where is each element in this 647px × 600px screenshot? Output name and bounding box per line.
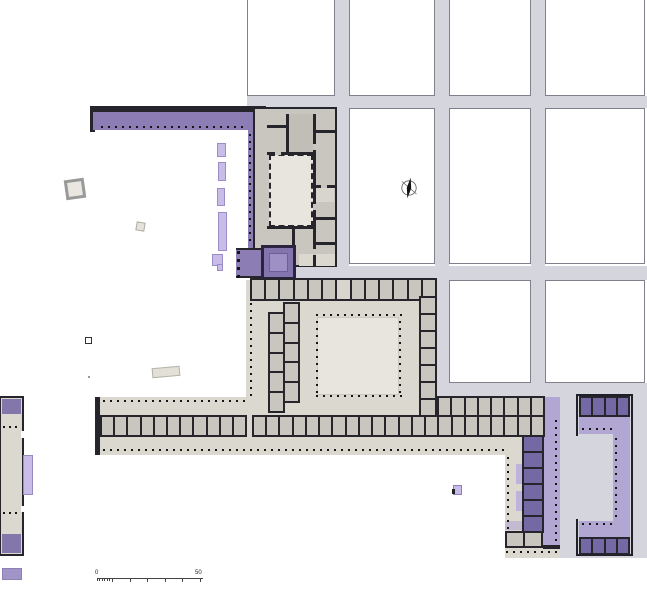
colonnade-dot: [507, 464, 509, 466]
colonnade-dot: [199, 126, 201, 128]
colonnade-dot: [222, 449, 224, 451]
colonnade-dot: [9, 426, 11, 428]
colonnade-dot: [555, 539, 557, 541]
room-cell: [591, 539, 603, 553]
room-cell: [307, 280, 321, 299]
room-cell: [490, 417, 503, 435]
room-cell: [126, 417, 139, 435]
colonnade-dot: [173, 400, 175, 402]
colonnade-dot: [131, 449, 133, 451]
southeast-corner-rooms: [437, 396, 545, 417]
room-cell: [264, 280, 278, 299]
colonnade-dot: [365, 395, 367, 397]
peristyle-courtyard: [317, 317, 399, 395]
colonnade-dot: [115, 126, 117, 128]
colonnade-dot: [237, 275, 240, 278]
colonnade-dot: [460, 449, 462, 451]
colonnade-dot: [596, 428, 598, 430]
room-cell: [524, 437, 542, 451]
colonnade-dot: [615, 438, 617, 440]
colonnade-dot: [446, 449, 448, 451]
colonnade-dot: [249, 134, 251, 136]
colonnade-dot: [376, 449, 378, 451]
room-cell: [398, 417, 411, 435]
scale-tick: [112, 578, 113, 582]
colonnade-dot: [555, 476, 557, 478]
room-cell: [318, 417, 331, 435]
colonnade-dot: [474, 449, 476, 451]
colonnade-dot: [229, 449, 231, 451]
colonnade-dot: [257, 449, 259, 451]
colonnade-dot: [180, 400, 182, 402]
colonnade-dot: [399, 384, 401, 386]
colonnade-dot: [227, 126, 229, 128]
colonnade-dot: [145, 449, 147, 451]
colonnade-dot: [249, 204, 251, 206]
colonnade-dot: [249, 211, 251, 213]
colonnade-dot: [411, 449, 413, 451]
colonnade-dot: [220, 126, 222, 128]
colonnade-dot: [393, 395, 395, 397]
colonnade-dot: [400, 395, 402, 397]
colonnade-dot: [358, 314, 360, 316]
colonnade-dot: [495, 449, 497, 451]
city-block: [449, 280, 531, 383]
east-wing-portico: [543, 397, 560, 547]
colonnade-dot: [399, 321, 401, 323]
colonnade-dot: [383, 449, 385, 451]
colonnade-dot: [400, 314, 402, 316]
colonnade-dot: [215, 449, 217, 451]
colonnade-dot: [603, 428, 605, 430]
lilac-fragment: [217, 143, 226, 157]
room-cell: [604, 398, 616, 415]
colonnade-dot: [615, 445, 617, 447]
room-cell: [270, 314, 283, 332]
colonnade-dot: [555, 448, 557, 450]
colonnade-dot: [372, 395, 374, 397]
door-gap: [275, 152, 281, 156]
room-cell: [421, 330, 435, 347]
colonnade-dot: [299, 449, 301, 451]
room-cell: [524, 483, 542, 499]
colonnade-dot: [208, 400, 210, 402]
colonnade-dot: [555, 504, 557, 506]
colonnade-dot: [399, 391, 401, 393]
room-cell: [331, 417, 344, 435]
colonnade-dot: [507, 457, 509, 459]
colonnade-dot: [399, 342, 401, 344]
colonnade-dot: [159, 449, 161, 451]
colonnade-dot: [603, 523, 605, 525]
colonnade-dot: [117, 400, 119, 402]
colonnade-dot: [145, 400, 147, 402]
colonnade-dot: [548, 551, 550, 553]
room-cell: [421, 364, 435, 381]
colonnade-dot: [250, 310, 252, 312]
colonnade-dot: [316, 384, 318, 386]
scale-tick: [107, 578, 108, 581]
scale-tick: [104, 578, 105, 581]
room-cell: [285, 361, 298, 381]
colonnade-dot: [507, 471, 509, 473]
room-cell: [285, 322, 298, 342]
door-gap: [313, 249, 317, 255]
lilac-fragment: [218, 162, 226, 181]
room-cell: [270, 352, 283, 372]
colonnade-dot: [390, 449, 392, 451]
scale-tick: [109, 578, 110, 581]
colonnade-dot: [213, 126, 215, 128]
colonnade-dot: [615, 508, 617, 510]
colonnade-dot: [355, 449, 357, 451]
colonnade-dot: [306, 449, 308, 451]
room-cell: [305, 417, 318, 435]
colonnade-dot: [152, 449, 154, 451]
room-cell: [285, 381, 298, 401]
colonnade-dot: [481, 449, 483, 451]
room-cell: [192, 417, 205, 435]
room-cell: [464, 398, 477, 415]
colonnade-dot: [131, 400, 133, 402]
room-cell: [153, 417, 166, 435]
south-stoa-shops: [100, 415, 247, 437]
colonnade-dot: [249, 239, 251, 241]
colonnade-dot: [110, 400, 112, 402]
room-cell: [364, 280, 378, 299]
room-cell: [421, 398, 435, 415]
room-cell: [450, 398, 463, 415]
room-cell: [604, 539, 616, 553]
colonnade-dot: [316, 370, 318, 372]
room-cell: [252, 280, 264, 299]
colonnade-dot: [187, 400, 189, 402]
room-cell: [581, 539, 591, 553]
colonnade-dot: [243, 449, 245, 451]
colonnade-dot: [108, 126, 110, 128]
colonnade-dot: [173, 449, 175, 451]
room-cell: [293, 280, 307, 299]
annex-north-rooms: [579, 396, 630, 417]
colonnade-dot: [439, 449, 441, 451]
colonnade-dot: [136, 126, 138, 128]
room-cell: [517, 398, 530, 415]
scale-bar-start-label: 0: [95, 570, 98, 576]
colonnade-dot: [596, 523, 598, 525]
colonnade-dot: [365, 314, 367, 316]
colonnade-dot: [358, 395, 360, 397]
colonnade-dot: [316, 377, 318, 379]
colonnade-dot: [316, 391, 318, 393]
colonnade-dot: [507, 478, 509, 480]
colonnade-dot: [185, 126, 187, 128]
colonnade-dot: [589, 523, 591, 525]
colonnade-dot: [555, 518, 557, 520]
east-wing-purple-rooms: [522, 435, 544, 533]
colonnade-dot: [555, 469, 557, 471]
colonnade-dot: [271, 449, 273, 451]
room-cell: [270, 371, 283, 391]
room-cell: [335, 280, 349, 299]
colonnade-dot: [555, 525, 557, 527]
colonnade-dot: [250, 449, 252, 451]
colonnade-dot: [372, 314, 374, 316]
colonnade-dot: [555, 490, 557, 492]
colonnade-dot: [250, 359, 252, 361]
colonnade-dot: [386, 314, 388, 316]
colonnade-dot: [192, 126, 194, 128]
west-building-south-band: [2, 534, 21, 553]
street-vertical-1: [335, 0, 349, 280]
colonnade-dot: [507, 527, 509, 529]
room-cell: [581, 398, 591, 415]
room-cell: [421, 347, 435, 364]
colonnade-dot: [236, 400, 238, 402]
colonnade-dot: [615, 480, 617, 482]
city-block: [247, 0, 335, 96]
colonnade-dot: [555, 441, 557, 443]
colonnade-dot: [250, 303, 252, 305]
colonnade-dot: [362, 449, 364, 451]
colonnade-dot: [399, 356, 401, 358]
colonnade-dot: [3, 426, 5, 428]
colonnade-dot: [555, 420, 557, 422]
colonnade-dot: [208, 449, 210, 451]
colonnade-dot: [425, 449, 427, 451]
colonnade-dot: [555, 462, 557, 464]
city-block: [545, 108, 645, 264]
colonnade-dot: [513, 551, 515, 553]
colonnade-dot: [171, 126, 173, 128]
colonnade-dot: [502, 449, 504, 451]
colonnade-dot: [103, 400, 105, 402]
colonnade-dot: [369, 449, 371, 451]
colonnade-dot: [615, 487, 617, 489]
colonnade-dot: [507, 492, 509, 494]
room-cell: [424, 417, 437, 435]
door-gap: [321, 185, 327, 189]
city-block: [545, 0, 645, 96]
room-cell: [265, 417, 278, 435]
colonnade-dot: [582, 428, 584, 430]
market-north-shops: [250, 278, 437, 301]
room-cell: [517, 417, 530, 435]
colonnade-dot: [159, 400, 161, 402]
colonnade-dot: [344, 314, 346, 316]
insula-room-light: [315, 187, 334, 202]
room-cell: [507, 533, 523, 546]
colonnade-dot: [507, 513, 509, 515]
colonnade-dot: [249, 141, 251, 143]
colonnade-dot: [348, 449, 350, 451]
room-cell: [437, 417, 450, 435]
room-cell: [421, 381, 435, 398]
colonnade-dot: [323, 314, 325, 316]
colonnade-dot: [337, 395, 339, 397]
colonnade-dot: [152, 400, 154, 402]
colonnade-dot: [316, 363, 318, 365]
colonnade-dot: [249, 218, 251, 220]
colonnade-dot: [555, 497, 557, 499]
purple-chamber-inner: [269, 253, 288, 272]
colonnade-dot: [250, 317, 252, 319]
room-cell: [421, 298, 435, 313]
scale-tick: [102, 578, 103, 581]
room-cell: [477, 398, 490, 415]
insula-room-dark: [288, 114, 313, 152]
room-cell: [616, 539, 628, 553]
colonnade-dot: [316, 328, 318, 330]
colonnade-dot: [432, 449, 434, 451]
colonnade-dot: [555, 434, 557, 436]
room-cell: [321, 280, 335, 299]
colonnade-dot: [3, 512, 5, 514]
colonnade-dot: [615, 473, 617, 475]
point-feature: [88, 376, 90, 378]
colonnade-dot: [249, 162, 251, 164]
scale-tick: [147, 578, 148, 582]
room-cell: [523, 533, 541, 546]
colonnade-dot: [418, 449, 420, 451]
colonnade-dot: [187, 449, 189, 451]
colonnade-dot: [138, 449, 140, 451]
city-block: [449, 108, 531, 264]
colonnade-dot: [351, 314, 353, 316]
colonnade-dot: [399, 349, 401, 351]
colonnade-dot: [453, 449, 455, 451]
annex-south-rooms: [579, 537, 630, 555]
colonnade-dot: [15, 512, 17, 514]
colonnade-dot: [316, 349, 318, 351]
colonnade-dot: [229, 400, 231, 402]
colonnade-dot: [337, 314, 339, 316]
colonnade-dot: [527, 551, 529, 553]
colonnade-dot: [615, 466, 617, 468]
colonnade-dot: [316, 321, 318, 323]
street-vertical-3: [531, 0, 545, 385]
colonnade-dot: [507, 506, 509, 508]
colonnade-dot: [386, 395, 388, 397]
scale-tick: [130, 578, 131, 582]
room-cell: [530, 417, 543, 435]
city-block: [349, 0, 435, 96]
colonnade-dot: [117, 449, 119, 451]
colonnade-dot: [379, 395, 381, 397]
colonnade-dot: [122, 126, 124, 128]
east-wing-south-rooms: [505, 531, 543, 548]
colonnade-dot: [157, 126, 159, 128]
insula-building: [253, 107, 337, 267]
colonnade-dot: [610, 428, 612, 430]
colonnade-dot: [110, 449, 112, 451]
east-wing-portico-south-wall: [543, 545, 560, 549]
scale-tick: [182, 578, 183, 582]
room-cell: [179, 417, 192, 435]
room-cell: [345, 417, 358, 435]
colonnade-dot: [330, 314, 332, 316]
colonnade-dot: [615, 501, 617, 503]
colonnade-dot: [249, 190, 251, 192]
colonnade-dot: [323, 395, 325, 397]
room-cell: [524, 467, 542, 483]
room-cell: [490, 398, 503, 415]
small-lilac-feature-tick: [452, 489, 455, 494]
colonnade-dot: [341, 449, 343, 451]
room-cell: [503, 398, 516, 415]
colonnade-dot: [250, 380, 252, 382]
colonnade-dot: [555, 483, 557, 485]
room-cell: [371, 417, 384, 435]
colonnade-dot: [241, 126, 243, 128]
colonnade-dot: [316, 395, 318, 397]
colonnade-dot: [124, 400, 126, 402]
colonnade-dot: [344, 395, 346, 397]
room-cell: [384, 417, 397, 435]
colonnade-dot: [316, 342, 318, 344]
colonnade-dot: [164, 126, 166, 128]
colonnade-dot: [143, 126, 145, 128]
lilac-fragment: [217, 188, 225, 206]
colonnade-dot: [250, 387, 252, 389]
colonnade-dot: [615, 452, 617, 454]
open-square-feature: [85, 337, 92, 344]
colonnade-dot: [250, 345, 252, 347]
colonnade-dot: [249, 155, 251, 157]
room-cell: [140, 417, 153, 435]
colonnade-dot: [330, 395, 332, 397]
colonnade-dot: [316, 356, 318, 358]
colonnade-dot: [507, 520, 509, 522]
colonnade-dot: [249, 232, 251, 234]
annex-portico-top: [579, 416, 630, 434]
room-cell: [591, 398, 603, 415]
colonnade-dot: [507, 499, 509, 501]
colonnade-dot: [488, 449, 490, 451]
colonnade-dot: [399, 377, 401, 379]
colonnade-dot: [541, 551, 543, 553]
market-west-cells: [283, 302, 300, 403]
room-cell: [421, 313, 435, 330]
colonnade-dot: [555, 455, 557, 457]
colonnade-dot: [615, 494, 617, 496]
colonnade-dot: [249, 183, 251, 185]
west-building-north-band: [2, 399, 21, 414]
room-cell: [378, 280, 392, 299]
door-gap: [313, 204, 317, 210]
colonnade-dot: [399, 328, 401, 330]
room-cell: [102, 417, 113, 435]
colonnade-dot: [237, 259, 240, 262]
room-cell: [358, 417, 371, 435]
archaeological-site-plan: 0 50: [0, 0, 647, 600]
annex-courtyard-opening: [574, 436, 580, 519]
colonnade-dot: [194, 449, 196, 451]
colonnade-dot: [555, 551, 557, 553]
colonnade-dot: [520, 551, 522, 553]
city-block: [545, 280, 645, 383]
colonnade-dot: [506, 551, 508, 553]
colonnade-dot: [399, 335, 401, 337]
colonnade-dot: [313, 449, 315, 451]
lilac-fragment: [217, 264, 223, 271]
colonnade-dot: [215, 400, 217, 402]
colonnade-dot: [250, 338, 252, 340]
room-cell: [439, 398, 450, 415]
room-cell: [524, 515, 542, 531]
room-cell: [392, 280, 406, 299]
room-cell: [113, 417, 126, 435]
colonnade-dot: [249, 176, 251, 178]
